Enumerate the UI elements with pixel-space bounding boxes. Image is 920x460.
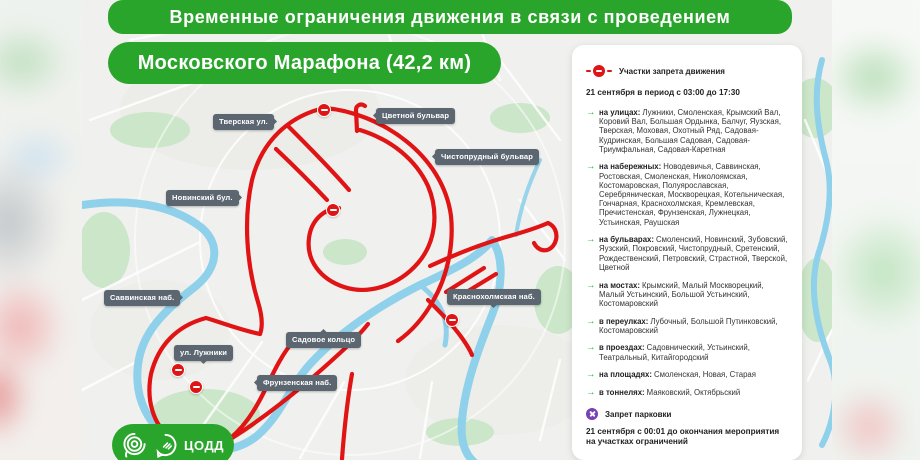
blurred-right-edge xyxy=(832,0,920,460)
infographic-frame: Тверская ул. Цветной бульвар Чистопрудны… xyxy=(0,0,920,460)
info-panel: Участки запрета движения 21 сентября в п… xyxy=(572,45,802,460)
section-prefix: в тоннелях: xyxy=(599,388,645,397)
legend-label: Участки запрета движения xyxy=(619,67,725,76)
map-label-sadovoe-koltso: Садовое кольцо xyxy=(286,332,361,348)
section-items: Новодевичья, Саввинская, Ростовская, Смо… xyxy=(599,162,784,226)
parking-ban-note: 21 сентября с 00:01 до окончания меропри… xyxy=(586,427,790,448)
section-bridges: → на мостах:Крымский, Малый Москворецкий… xyxy=(586,281,790,309)
blurred-left-edge xyxy=(0,0,84,460)
no-entry-route-icon xyxy=(586,65,612,77)
arrow-icon: → xyxy=(586,316,596,327)
arrow-icon: → xyxy=(586,234,596,245)
no-entry-badge xyxy=(189,380,203,394)
section-prefix: на улицах: xyxy=(599,108,640,117)
section-squares: → на площадях:Смоленская, Новая, Старая xyxy=(586,370,790,379)
section-tunnels: → в тоннелях:Маяковский, Октябрьский xyxy=(586,388,790,397)
section-lanes: → в переулках:Лубочный, Большой Путинков… xyxy=(586,317,790,335)
title-banner-line1: Временные ограничения движения в связи с… xyxy=(108,0,792,34)
section-prefix: на мостах: xyxy=(599,281,640,290)
arrow-icon: → xyxy=(586,387,596,398)
arrow-icon: → xyxy=(586,342,596,353)
arrow-icon: → xyxy=(586,280,596,291)
map-label-savvinskaya: Саввинская наб. xyxy=(104,290,180,306)
parking-ban-label: Запрет парковки xyxy=(605,410,671,419)
section-boulevards: → на бульварах:Смоленский, Новинский, Зу… xyxy=(586,235,790,272)
arrow-icon: → xyxy=(586,107,596,118)
no-entry-badge xyxy=(326,203,340,217)
section-embankments: → на набережных:Новодевичья, Саввинская,… xyxy=(586,162,790,226)
no-parking-icon xyxy=(586,408,598,420)
no-entry-badge xyxy=(445,313,459,327)
section-passages: → в проездах:Садовнический, Устьинский, … xyxy=(586,343,790,361)
map-label-luzhniki: ул. Лужники xyxy=(174,345,233,361)
section-prefix: в переулках: xyxy=(599,317,648,326)
map-label-novinsky: Новинский бул. xyxy=(166,190,239,206)
codd-logo: ЦОДД xyxy=(112,424,234,460)
codd-logo-text: ЦОДД xyxy=(184,438,224,453)
section-prefix: на площадях: xyxy=(599,370,652,379)
section-streets: → на улицах:Лужники, Смоленская, Крымски… xyxy=(586,108,790,154)
codd-bubble-icon xyxy=(153,432,178,458)
section-prefix: в проездах: xyxy=(599,343,645,352)
legend-row: Участки запрета движения xyxy=(586,65,790,77)
moscow-transport-icon xyxy=(122,432,147,458)
no-entry-badge xyxy=(317,103,331,117)
arrow-icon: → xyxy=(586,369,596,380)
section-items: Смоленская, Новая, Старая xyxy=(654,370,756,379)
map-label-tverskaya: Тверская ул. xyxy=(213,114,274,130)
map-label-chistoprudny: Чистопрудный бульвар xyxy=(435,149,539,165)
section-prefix: на набережных: xyxy=(599,162,661,171)
title-banner-line2: Московского Марафона (42,2 км) xyxy=(108,42,501,84)
map-label-krasnokholmskaya: Краснохолмская наб. xyxy=(447,289,541,305)
map-label-frunzenskaya: Фрунзенская наб. xyxy=(257,375,337,391)
arrow-icon: → xyxy=(586,161,596,172)
map-label-tsvetnoy: Цветной бульвар xyxy=(376,108,455,124)
no-entry-badge xyxy=(171,363,185,377)
restriction-schedule: 21 сентября в период с 03:00 до 17:30 xyxy=(586,88,790,97)
section-prefix: на бульварах: xyxy=(599,235,654,244)
parking-ban-row: Запрет парковки xyxy=(586,408,790,420)
section-items: Маяковский, Октябрьский xyxy=(647,388,741,397)
